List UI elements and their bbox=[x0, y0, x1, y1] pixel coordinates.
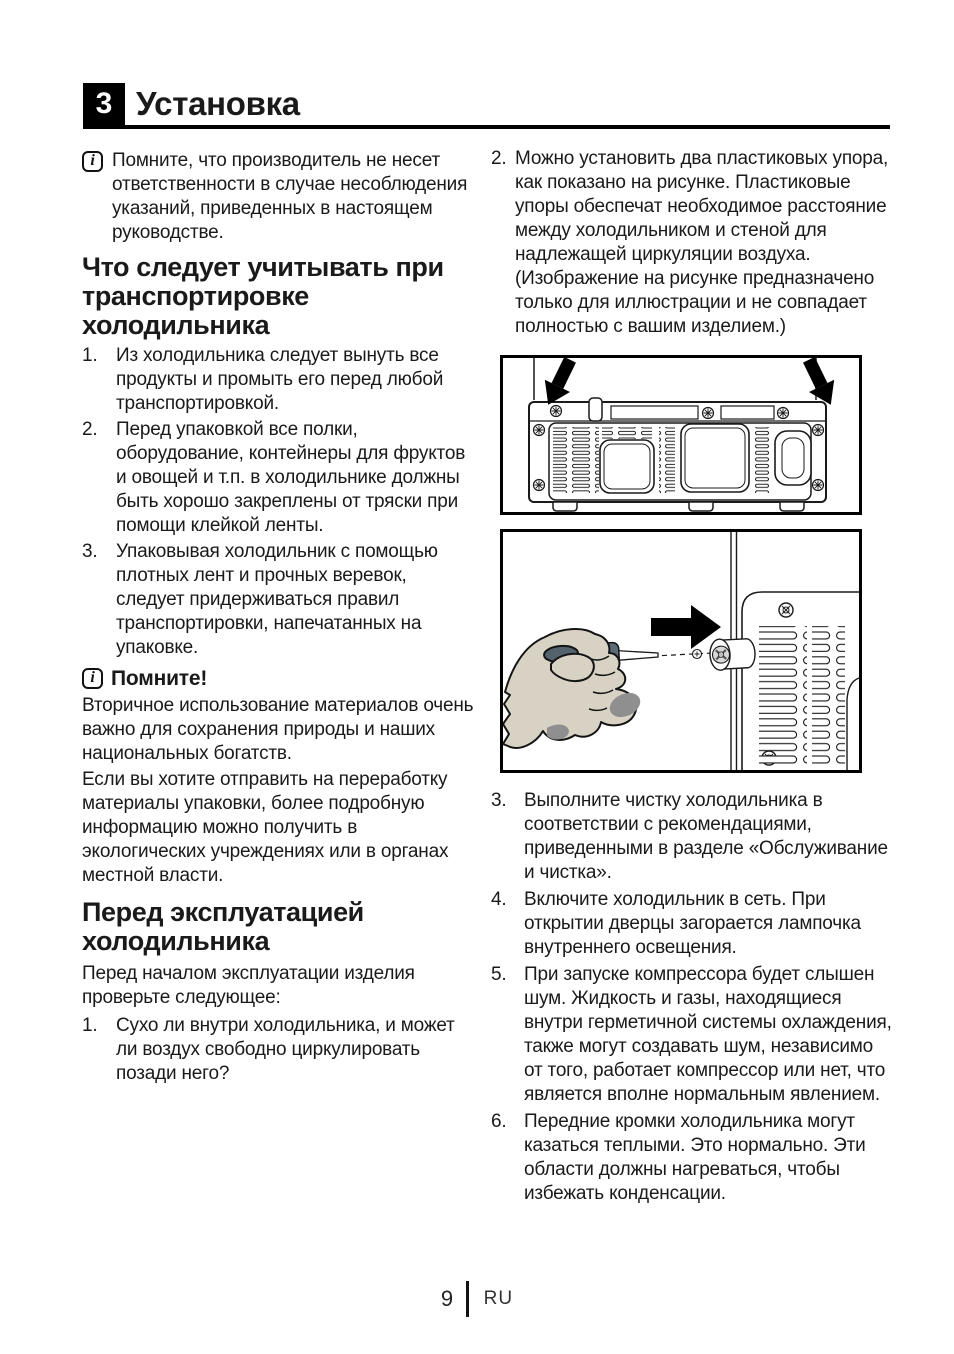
chapter-header: 3 Установка bbox=[83, 83, 890, 129]
alignment-dashed-line bbox=[653, 653, 713, 656]
list-text: При запуске компрессора будет слышен шум… bbox=[524, 963, 893, 1107]
list-number: 1. bbox=[82, 344, 116, 416]
thumb bbox=[551, 654, 594, 681]
spacer-install-illustration bbox=[503, 532, 859, 770]
fridge-feet bbox=[553, 502, 804, 511]
list-number: 4. bbox=[491, 888, 524, 960]
transport-list: 1. Из холодильника следует вынуть все пр… bbox=[82, 344, 474, 660]
list-number: 3. bbox=[82, 540, 116, 660]
list-text: Включите холодильник в сеть. При открыти… bbox=[524, 888, 893, 960]
list-text: Перед упаковкой все полки, оборудование,… bbox=[116, 418, 474, 538]
compressor-cover-left bbox=[600, 440, 654, 493]
page-number: 9 bbox=[441, 1281, 453, 1317]
info-icon: i bbox=[82, 668, 103, 689]
screwdriver-shaft bbox=[615, 651, 658, 661]
list-text: Можно установить два пластиковых упора, … bbox=[515, 147, 893, 339]
screw-icon bbox=[534, 480, 545, 491]
list-text: Из холодильника следует вынуть все проду… bbox=[116, 344, 474, 416]
section-heading-before-use: Перед эксплуатацией холодильника bbox=[82, 898, 474, 956]
right-column: 2. Можно установить два пластиковых упор… bbox=[491, 147, 893, 1206]
list-item: 4. Включите холодильник в сеть. При откр… bbox=[491, 888, 893, 960]
page-footer: 9 RU bbox=[0, 1281, 954, 1317]
chapter-title: Установка bbox=[136, 83, 300, 125]
chapter-number-badge: 3 bbox=[83, 83, 125, 125]
list-item: 3. Упаковывая холодильник с помощью плот… bbox=[82, 540, 474, 660]
left-column: i Помните, что производитель не несет от… bbox=[82, 149, 474, 1086]
list-text: Сухо ли внутри холодильника, и может ли … bbox=[116, 1014, 474, 1086]
list-number: 3. bbox=[491, 789, 524, 885]
list-item: 1. Сухо ли внутри холодильника, и может … bbox=[82, 1014, 474, 1086]
list-item: 5. При запуске компрессора будет слышен … bbox=[491, 963, 893, 1107]
manufacturer-note-text: Помните, что производитель не несет отве… bbox=[112, 149, 474, 245]
list-item: 1. Из холодильника следует вынуть все пр… bbox=[82, 344, 474, 416]
list-text: Выполните чистку холодильника в соответс… bbox=[524, 789, 893, 885]
before-use-intro: Перед началом эксплуатации изделия прове… bbox=[82, 962, 474, 1010]
footer-divider bbox=[466, 1281, 469, 1317]
recess-corner-line bbox=[847, 678, 859, 770]
manufacturer-note-block: i Помните, что производитель не несет от… bbox=[82, 149, 474, 245]
list-number: 2. bbox=[491, 147, 515, 339]
list-text: Упаковывая холодильник с помощью плотных… bbox=[116, 540, 474, 660]
plastic-spacer bbox=[709, 637, 756, 670]
list-text: Передние кромки холодильника могут казат… bbox=[524, 1110, 893, 1206]
arrow-right-icon bbox=[651, 605, 721, 649]
screw-icon bbox=[779, 603, 793, 617]
screw-icon bbox=[778, 408, 789, 419]
figure-spacer-install bbox=[500, 529, 862, 773]
compressor-cover-right bbox=[681, 424, 749, 492]
screw-icon bbox=[703, 408, 714, 419]
list-number: 6. bbox=[491, 1110, 524, 1206]
before-use-list: 1. Сухо ли внутри холодильника, и может … bbox=[82, 1014, 474, 1086]
hand bbox=[503, 629, 644, 748]
list-number: 1. bbox=[82, 1014, 116, 1086]
list-item: 6. Передние кромки холодильника могут ка… bbox=[491, 1110, 893, 1206]
info-icon: i bbox=[82, 151, 103, 172]
fridge-back-illustration bbox=[503, 358, 859, 512]
remember-note-block: i Помните! bbox=[82, 666, 474, 692]
handle-recess bbox=[775, 431, 811, 485]
list-number: 2. bbox=[82, 418, 116, 538]
recycle-paragraph-2: Если вы хотите отправить на переработку … bbox=[82, 768, 474, 888]
screw-icon bbox=[551, 406, 562, 417]
remember-label: Помните! bbox=[111, 666, 207, 692]
recycle-paragraph-1: Вторичное использование материалов очень… bbox=[82, 694, 474, 766]
screw-icon bbox=[813, 425, 824, 436]
list-item: 3. Выполните чистку холодильника в соотв… bbox=[491, 789, 893, 885]
list-item: 2. Можно установить два пластиковых упор… bbox=[491, 147, 893, 339]
list-number: 5. bbox=[491, 963, 524, 1107]
hinge-tab bbox=[589, 398, 602, 421]
screw-icon bbox=[813, 480, 824, 491]
small-screw-icon bbox=[693, 650, 702, 659]
manual-page: 3 Установка i Помните, что производитель… bbox=[0, 0, 954, 1354]
section-heading-transport: Что следует учитывать при транспортировк… bbox=[82, 253, 474, 340]
screw-icon bbox=[534, 425, 545, 436]
language-code: RU bbox=[484, 1281, 513, 1317]
fridge-side-walls bbox=[534, 358, 816, 400]
setup-steps-list: 3. Выполните чистку холодильника в соотв… bbox=[491, 789, 893, 1206]
list-item: 2. Перед упаковкой все полки, оборудован… bbox=[82, 418, 474, 538]
figure-fridge-back bbox=[500, 355, 862, 515]
